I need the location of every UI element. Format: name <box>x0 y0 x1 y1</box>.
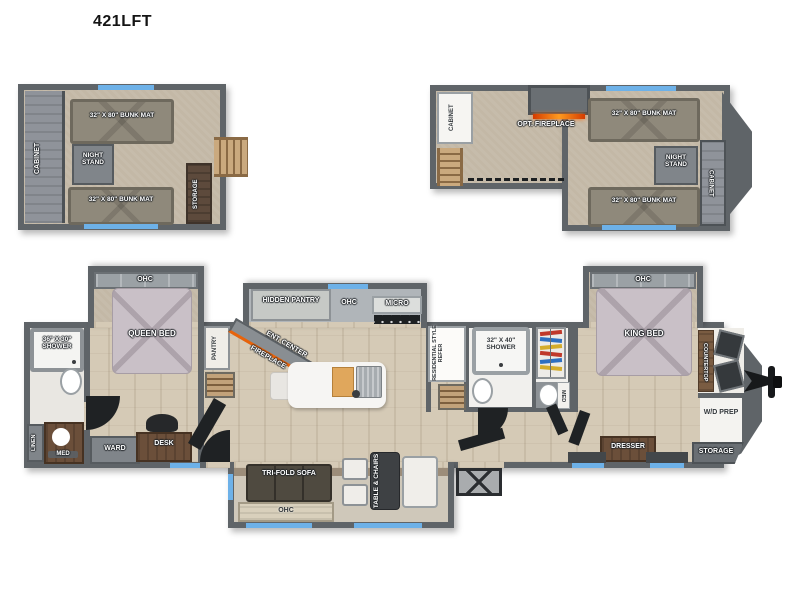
front-bedroom-window-right <box>650 463 684 468</box>
wardrobe-rod-icon <box>550 329 551 377</box>
desk-chair-icon <box>146 414 178 432</box>
bedroom-window <box>170 463 200 468</box>
front-window-mat-left <box>568 452 606 463</box>
queen-bed-label: QUEEN BED <box>116 330 188 339</box>
wall-bath-bedroom-upper <box>84 328 90 402</box>
refer-label: RESIDENTIAL STYLE REFER <box>432 323 462 383</box>
living-window-left <box>246 523 312 528</box>
rear-loft-bunk-top-label: 32" X 80" BUNK MAT <box>78 112 166 119</box>
front-loft-night-stand-label: NIGHT STAND <box>658 154 694 169</box>
rear-toilet <box>60 368 82 395</box>
dining-bench <box>402 456 438 508</box>
front-bedroom-window-left <box>572 463 604 468</box>
rear-loft-cabinet <box>25 91 65 223</box>
pantry-label: PANTRY <box>212 330 219 366</box>
loft-stairs-front <box>438 384 466 410</box>
front-loft-cabinet-right-label: CABINET <box>707 148 714 218</box>
queen-ohc-label: OHC <box>120 276 170 284</box>
rear-linen-label: LINEN <box>31 428 37 458</box>
dining-chair-bottom <box>342 484 368 506</box>
rear-loft-cabinet-label: CABINET <box>34 118 42 198</box>
micro-label: MICRO <box>374 300 420 308</box>
rear-loft-bunk-bottom <box>68 187 174 225</box>
ward-label: WARD <box>94 445 136 453</box>
page-title: 421LFT <box>93 13 152 31</box>
rear-shower-drain <box>72 360 76 364</box>
island-faucet-icon <box>352 390 360 398</box>
rear-med-label: MED <box>48 451 78 458</box>
front-storage-label: STORAGE <box>694 448 738 456</box>
front-loft-ladder-icon <box>437 148 463 186</box>
living-window-right <box>354 523 422 528</box>
tri-fold-sofa-label: TRI-FOLD SOFA <box>252 470 326 478</box>
wd-prep-label: W/D PREP <box>703 409 739 417</box>
front-loft-window-top <box>606 86 676 91</box>
desk-label: DESK <box>140 440 188 448</box>
kitchen-ohc-label: OHC <box>330 299 368 307</box>
dining-chair-top <box>342 458 368 480</box>
mid-toilet <box>472 378 493 404</box>
front-loft-opt-fireplace-label: OPT. FIREPLACE <box>498 121 594 129</box>
loft-stairs-rear <box>205 372 235 398</box>
hitch-knob-icon <box>773 376 782 388</box>
front-loft-bunk-bottom <box>588 187 700 227</box>
dining-table-label: TABLE & CHAIRS <box>373 451 397 511</box>
front-loft-railing <box>468 178 564 181</box>
rear-loft-storage-label: STORAGE <box>193 168 200 220</box>
rear-loft-window-top <box>98 85 154 90</box>
range-icon <box>374 315 420 324</box>
entry-door-rear-opening <box>206 462 230 468</box>
mid-shower-label: 32" X 40" SHOWER <box>476 337 526 352</box>
mid-shower-drain <box>499 363 503 367</box>
rear-loft-night-stand-label: NIGHT STAND <box>74 152 112 167</box>
front-loft-cabinet-left-label: CABINET <box>449 97 456 139</box>
rear-shower-label: 36" X 30" SHOWER <box>32 336 82 351</box>
rear-loft-bunk-top <box>70 99 174 144</box>
front-loft-flame-icon <box>533 114 585 119</box>
kitchen-window <box>328 284 368 289</box>
king-bed-label: KING BED <box>604 330 684 339</box>
hidden-pantry-label: HIDDEN PANTRY <box>253 297 329 305</box>
countertop-label: COUNTERTOP <box>702 335 708 389</box>
dresser-label: DRESSER <box>602 443 654 451</box>
mid-med-label: MED <box>560 385 566 407</box>
hidden-pantry-cabinet <box>251 289 331 321</box>
front-window-mat-right <box>646 452 688 463</box>
rear-loft-window-bottom <box>84 224 158 229</box>
living-ohc-label: OHC <box>268 507 304 515</box>
entry-steps-icon <box>456 468 502 496</box>
front-loft-bunk-bottom-label: 32" X 80" BUNK MAT <box>598 197 690 204</box>
front-loft-bunk-top-label: 32" X 80" BUNK MAT <box>598 110 690 117</box>
front-loft-nose <box>722 92 752 224</box>
rear-loft-bunk-bottom-label: 32" X 80" BUNK MAT <box>76 196 166 203</box>
rear-loft-ladder-icon <box>214 137 248 177</box>
floorplan-421lft: 421LFT CABINET 32" X 80" BUNK MAT NIGHT … <box>0 0 800 600</box>
cutting-board-icon <box>332 367 354 397</box>
front-loft-window-bottom <box>602 225 676 230</box>
front-loft-bunk-top <box>588 98 700 142</box>
king-ohc-label: OHC <box>618 276 668 284</box>
living-window-side <box>228 474 233 500</box>
rear-vanity-sink <box>52 428 70 446</box>
wd-prep-room <box>700 398 742 442</box>
front-loft-fireplace-cabinet <box>528 85 590 115</box>
